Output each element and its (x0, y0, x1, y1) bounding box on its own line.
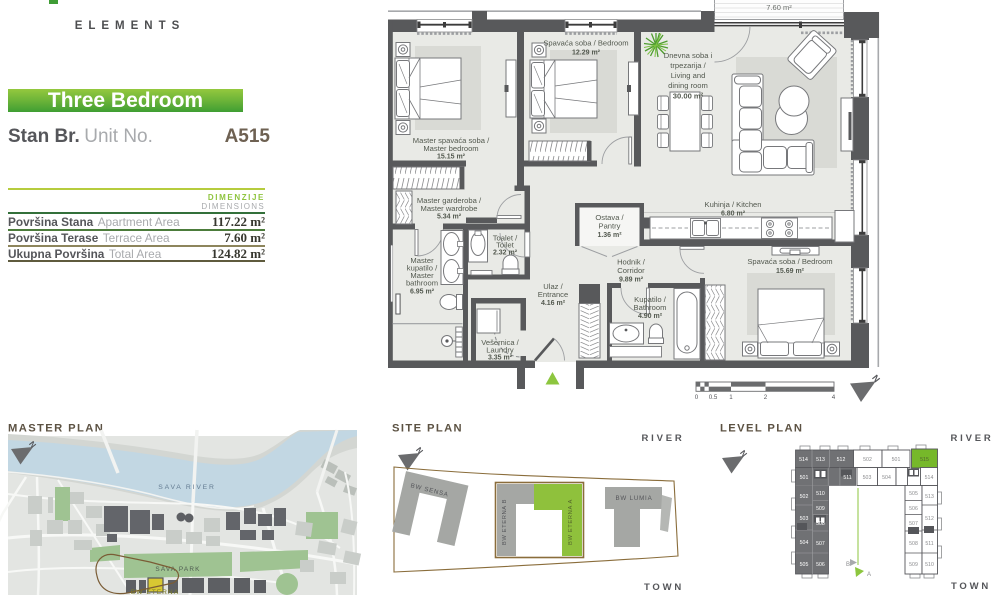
svg-text:15.15 m²: 15.15 m² (437, 154, 466, 161)
svg-text:BW ETERNA A: BW ETERNA A (568, 499, 574, 545)
svg-text:Pantry: Pantry (599, 222, 621, 231)
svg-text:SITE PLAN: SITE PLAN (392, 423, 463, 435)
svg-text:502: 502 (863, 457, 872, 463)
svg-text:505: 505 (800, 562, 809, 568)
svg-text:511: 511 (843, 475, 851, 481)
svg-text:502: 502 (800, 494, 809, 500)
svg-text:Spavaća soba / Bedroom: Spavaća soba / Bedroom (543, 39, 628, 48)
svg-text:512: 512 (925, 516, 934, 522)
svg-text:501: 501 (892, 457, 901, 463)
svg-text:514: 514 (925, 475, 934, 481)
svg-text:503: 503 (863, 475, 872, 481)
svg-text:Kuhinja / Kitchen: Kuhinja / Kitchen (705, 200, 762, 209)
svg-text:trpezarija /: trpezarija / (670, 61, 706, 70)
svg-text:9.89 m²: 9.89 m² (619, 277, 644, 284)
svg-text:7.60 m²: 7.60 m² (766, 3, 792, 12)
svg-text:4: 4 (832, 394, 836, 401)
svg-text:0.5: 0.5 (709, 394, 718, 401)
svg-text:TOWN: TOWN (951, 581, 991, 592)
svg-text:510: 510 (925, 562, 934, 568)
svg-text:1.36 m²: 1.36 m² (597, 232, 622, 239)
svg-text:BW LUMIA: BW LUMIA (616, 495, 653, 502)
svg-text:MASTER PLAN: MASTER PLAN (8, 423, 104, 435)
svg-text:30.00 m²: 30.00 m² (673, 92, 704, 101)
svg-text:A: A (867, 572, 871, 578)
svg-text:508: 508 (816, 521, 825, 527)
svg-text:RIVER: RIVER (950, 433, 993, 444)
svg-text:504: 504 (800, 540, 809, 546)
svg-text:Corridor: Corridor (617, 266, 645, 275)
svg-text:Toilet: Toilet (496, 241, 515, 250)
svg-text:6.80 m²: 6.80 m² (721, 211, 746, 218)
svg-text:bathroom: bathroom (406, 279, 438, 288)
svg-text:dining room: dining room (668, 81, 708, 90)
svg-text:505: 505 (909, 491, 918, 497)
svg-text:B: B (846, 562, 850, 568)
svg-text:506: 506 (909, 506, 918, 512)
svg-text:515: 515 (920, 457, 929, 463)
svg-text:LEVEL PLAN: LEVEL PLAN (720, 423, 803, 435)
svg-text:513: 513 (925, 494, 934, 500)
svg-text:Master bedroom: Master bedroom (423, 144, 478, 153)
svg-text:514: 514 (799, 457, 808, 463)
svg-text:BW ETERNA: BW ETERNA (131, 589, 179, 595)
svg-text:Dnevna soba i: Dnevna soba i (664, 51, 713, 60)
svg-text:501: 501 (800, 475, 809, 481)
svg-text:SAVA RIVER: SAVA RIVER (158, 484, 215, 491)
svg-text:504: 504 (882, 475, 891, 481)
svg-text:2.32 m²: 2.32 m² (493, 250, 518, 257)
svg-text:RIVER: RIVER (641, 433, 684, 444)
svg-text:512: 512 (837, 457, 846, 463)
svg-text:BW ETERNA B: BW ETERNA B (502, 499, 508, 545)
svg-text:1: 1 (729, 394, 733, 401)
svg-text:4.90 m²: 4.90 m² (638, 313, 663, 320)
svg-text:507: 507 (816, 541, 825, 547)
svg-text:506: 506 (816, 562, 825, 568)
svg-text:Laundry: Laundry (486, 346, 514, 355)
svg-text:Bathroom: Bathroom (634, 303, 667, 312)
svg-text:508: 508 (909, 541, 918, 547)
svg-text:Living and: Living and (671, 71, 706, 80)
svg-text:6.95 m²: 6.95 m² (410, 289, 435, 296)
svg-text:2: 2 (764, 394, 768, 401)
svg-text:4.16 m²: 4.16 m² (541, 300, 566, 307)
svg-text:510: 510 (816, 491, 825, 497)
svg-text:0: 0 (695, 394, 699, 401)
svg-text:5.34 m²: 5.34 m² (437, 214, 462, 221)
svg-text:3.35 m²: 3.35 m² (488, 355, 513, 362)
svg-text:12.29 m²: 12.29 m² (572, 50, 601, 57)
svg-text:Spavaća soba / Bedroom: Spavaća soba / Bedroom (747, 257, 832, 266)
svg-text:Entrance: Entrance (538, 290, 568, 299)
svg-text:507: 507 (909, 521, 918, 527)
svg-text:15.69 m²: 15.69 m² (776, 268, 805, 275)
svg-text:TOWN: TOWN (644, 582, 684, 593)
svg-text:511: 511 (925, 541, 933, 547)
svg-text:503: 503 (800, 516, 809, 522)
svg-text:513: 513 (816, 457, 825, 463)
svg-text:509: 509 (909, 562, 918, 568)
svg-text:Master wardrobe: Master wardrobe (421, 204, 478, 213)
svg-text:509: 509 (816, 506, 825, 512)
